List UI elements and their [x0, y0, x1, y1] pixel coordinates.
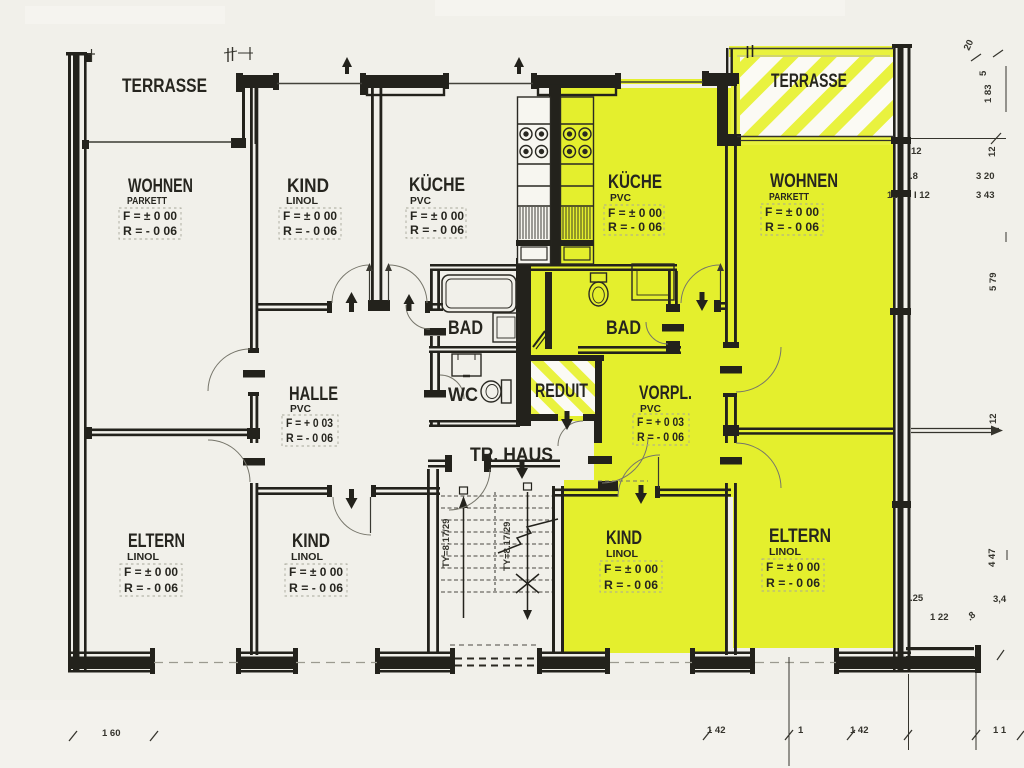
svg-text:R = - 0 06: R = - 0 06: [604, 580, 658, 592]
svg-text:WOHNEN: WOHNEN: [770, 171, 838, 192]
svg-text:TERRASSE: TERRASSE: [771, 71, 847, 92]
svg-text:F = ± 0 00: F = ± 0 00: [283, 211, 337, 223]
svg-text:KIND: KIND: [606, 528, 642, 549]
svg-text:WC: WC: [448, 385, 478, 406]
svg-text:TY=8.17/29: TY=8.17/29: [441, 519, 452, 568]
svg-text:LINOL: LINOL: [606, 548, 639, 560]
svg-text:12: 12: [988, 413, 999, 424]
svg-text:WOHNEN: WOHNEN: [128, 176, 193, 197]
svg-text:KÜCHE: KÜCHE: [608, 172, 662, 193]
svg-text:TR. HAUS: TR. HAUS: [470, 445, 553, 466]
svg-text:R = - 0 06: R = - 0 06: [283, 226, 337, 238]
svg-text:PARKETT: PARKETT: [769, 191, 809, 203]
svg-text:3 20: 3 20: [976, 171, 995, 182]
svg-text:F = + 0 03: F = + 0 03: [637, 417, 684, 429]
svg-text:KIND: KIND: [292, 531, 330, 552]
svg-text:12: 12: [911, 146, 922, 157]
svg-text:LINOL: LINOL: [286, 195, 319, 207]
svg-text:1 1: 1 1: [993, 725, 1007, 736]
svg-text:1 42: 1 42: [707, 725, 726, 736]
svg-text:R = - 0 06: R = - 0 06: [766, 578, 820, 590]
svg-text:.8: .8: [910, 171, 918, 182]
svg-text:3,4: 3,4: [993, 594, 1007, 605]
svg-text:R = - 0 06: R = - 0 06: [123, 226, 177, 238]
svg-text:F = ± 0 00: F = ± 0 00: [604, 564, 658, 576]
svg-text:12: 12: [987, 146, 998, 157]
svg-text:5 79: 5 79: [988, 273, 999, 292]
svg-text:R = - 0 06: R = - 0 06: [765, 222, 819, 234]
svg-text:F = ± 0 00: F = ± 0 00: [123, 211, 177, 223]
svg-text:1 42: 1 42: [850, 725, 869, 736]
svg-text:F = ± 0 00: F = ± 0 00: [608, 208, 662, 220]
svg-text:BAD: BAD: [448, 318, 483, 339]
svg-text:1 60: 1 60: [102, 728, 121, 739]
svg-text:TERRASSE: TERRASSE: [122, 76, 207, 97]
svg-text:R = - 0 06: R = - 0 06: [286, 433, 333, 445]
svg-text:F = ± 0 00: F = ± 0 00: [289, 567, 343, 579]
svg-text:F = ± 0 00: F = ± 0 00: [766, 562, 820, 574]
svg-text:LINOL: LINOL: [769, 546, 802, 558]
svg-text:HALLE: HALLE: [289, 384, 338, 405]
svg-text:5: 5: [978, 70, 989, 76]
svg-text:PARKETT: PARKETT: [127, 195, 167, 207]
svg-text:R = - 0 06: R = - 0 06: [124, 583, 178, 595]
svg-text:F = + 0 03: F = + 0 03: [286, 418, 333, 430]
svg-text:1 83: 1 83: [983, 85, 994, 104]
svg-text:3 43: 3 43: [976, 190, 995, 201]
svg-text:1 22: 1 22: [930, 612, 949, 623]
svg-text:LINOL: LINOL: [127, 551, 160, 563]
svg-text:1: 1: [798, 725, 804, 736]
svg-text:I 12: I 12: [914, 190, 930, 201]
svg-text:R = - 0 06: R = - 0 06: [289, 583, 343, 595]
svg-text:KIND: KIND: [287, 176, 329, 197]
svg-text:LINOL: LINOL: [291, 551, 324, 563]
svg-text:R = - 0 06: R = - 0 06: [608, 222, 662, 234]
svg-text:VORPL.: VORPL.: [639, 383, 692, 404]
svg-text:F = ± 0 00: F = ± 0 00: [410, 211, 464, 223]
svg-text:BAD: BAD: [606, 318, 641, 339]
svg-text:4 47: 4 47: [987, 549, 998, 568]
svg-text:REDUIT: REDUIT: [535, 381, 588, 402]
svg-text:ELTERN: ELTERN: [128, 531, 185, 552]
svg-text:PVC: PVC: [410, 195, 431, 207]
svg-text:KÜCHE: KÜCHE: [409, 175, 465, 196]
svg-text:.25: .25: [910, 593, 924, 604]
svg-text:TY=8.17/29: TY=8.17/29: [502, 522, 513, 571]
svg-text:F = ± 0 00: F = ± 0 00: [124, 567, 178, 579]
svg-text:ELTERN: ELTERN: [769, 526, 831, 547]
svg-text:PVC: PVC: [640, 403, 661, 415]
svg-text:F = ± 0 00: F = ± 0 00: [765, 207, 819, 219]
svg-text:PVC: PVC: [610, 192, 631, 204]
svg-text:R = - 0 06: R = - 0 06: [637, 432, 684, 444]
svg-text:R = - 0 06: R = - 0 06: [410, 225, 464, 237]
svg-text:PVC: PVC: [290, 403, 311, 415]
